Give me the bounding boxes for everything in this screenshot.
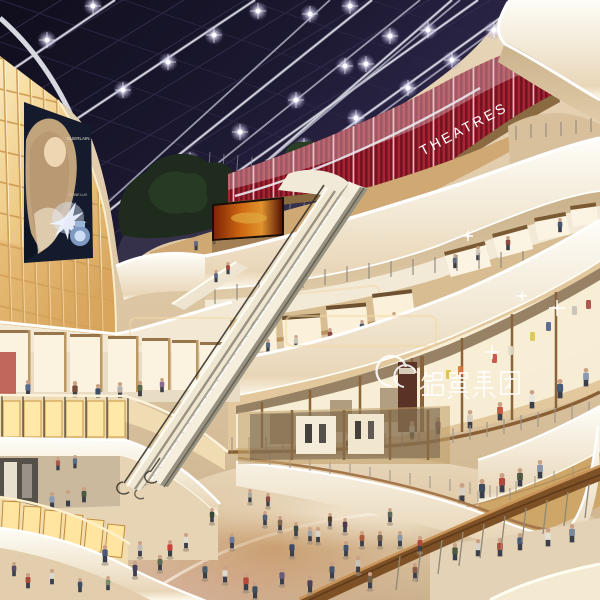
svg-text:SHINE LUX: SHINE LUX: [69, 193, 88, 197]
svg-text:GUERLAIN: GUERLAIN: [66, 136, 89, 141]
